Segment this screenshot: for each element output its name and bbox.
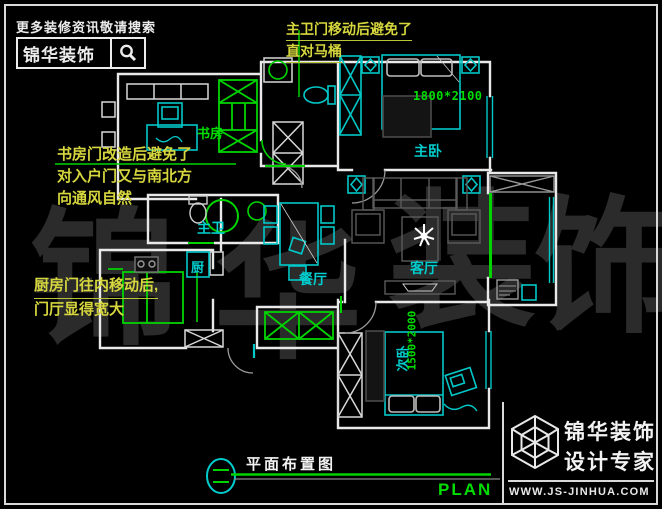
footer-website: WWW.JS-JINHUA.COM bbox=[509, 486, 650, 498]
room-label-master-bedroom: 主卧 bbox=[414, 141, 442, 161]
plant-icon bbox=[414, 224, 434, 246]
shoe-cabinet bbox=[265, 312, 333, 339]
room-label-study: 书房 bbox=[197, 123, 223, 142]
study-desk bbox=[147, 103, 197, 150]
footer-underline bbox=[508, 480, 654, 482]
sink bbox=[269, 61, 287, 79]
second-bedroom-desk bbox=[445, 368, 476, 396]
balcony-sink bbox=[522, 285, 536, 300]
search-icon[interactable] bbox=[112, 43, 144, 63]
promo-tagline: 更多装修资讯敬请搜索 bbox=[16, 17, 156, 36]
room-label-kitchen: 厨 bbox=[191, 257, 204, 276]
sofa-set bbox=[352, 178, 480, 243]
tv-cabinet bbox=[385, 281, 455, 294]
window-master bbox=[487, 96, 493, 158]
annotation-line: 主卫门移动后避免了 bbox=[286, 19, 412, 41]
study-green-cabinet bbox=[219, 80, 257, 152]
nightstand bbox=[462, 57, 479, 73]
dimension-second-bed: 1500*2000 bbox=[406, 304, 419, 378]
footer-divider bbox=[502, 402, 504, 503]
room-label-living: 客厅 bbox=[410, 258, 438, 278]
window-second-bedroom bbox=[486, 331, 491, 389]
master-wardrobe bbox=[340, 56, 361, 135]
drawing-title: 平面布置图 bbox=[246, 453, 336, 474]
promo-search-box[interactable]: 锦华装饰 bbox=[16, 37, 146, 69]
balcony-storage bbox=[490, 176, 554, 192]
annotation-study: 书房门改造后避免了 对入户门又与南北方 向通风自然 bbox=[57, 144, 192, 210]
stove bbox=[135, 257, 158, 272]
annotation-kitchen: 厨房门往内移动后, 门厅显得宽大 bbox=[34, 275, 158, 321]
room-label-dining: 餐厅 bbox=[299, 269, 327, 289]
screenshot-root: 锦 华 装 饰 bbox=[0, 0, 662, 509]
footer-brand-slogan: 设计专家 bbox=[564, 446, 656, 476]
dimension-master-bed: 1800*2100 bbox=[413, 89, 483, 103]
room-label-master-bath: 主卫 bbox=[197, 218, 225, 238]
annotation-line: 向通风自然 bbox=[57, 188, 192, 210]
flue-box bbox=[185, 330, 223, 347]
footer-brand-name: 锦华装饰 bbox=[564, 416, 656, 446]
annotation-line: 对入户门又与南北方 bbox=[57, 166, 192, 188]
entry-door-arc bbox=[228, 348, 253, 373]
radiator bbox=[102, 102, 115, 117]
section-marker-icon bbox=[207, 459, 235, 493]
window-balcony bbox=[550, 197, 554, 283]
annotation-line: 书房门改造后避免了 bbox=[57, 144, 192, 166]
annotation-line: 门厅显得宽大 bbox=[34, 301, 124, 318]
hall-wardrobe bbox=[273, 122, 303, 184]
washing-machine bbox=[497, 280, 518, 299]
study-shelf bbox=[127, 84, 208, 99]
desk-cable bbox=[444, 404, 477, 411]
promo-brand: 锦华装饰 bbox=[18, 41, 110, 66]
floor-plan-drawing bbox=[0, 0, 662, 509]
annotation-line: 厨房门往内移动后, bbox=[34, 275, 158, 299]
drawing-title-en: PLAN bbox=[438, 480, 492, 500]
annotation-line: 直对马桶 bbox=[286, 41, 342, 63]
second-bedroom-wardrobe bbox=[338, 333, 362, 417]
annotation-top-bath: 主卫门移动后避免了 直对马桶 bbox=[286, 19, 412, 63]
toilet-top-bath bbox=[304, 86, 335, 104]
cube-logo-icon bbox=[512, 416, 558, 468]
second-bedroom-door-arc bbox=[345, 302, 376, 333]
master-door-arc bbox=[352, 170, 385, 203]
